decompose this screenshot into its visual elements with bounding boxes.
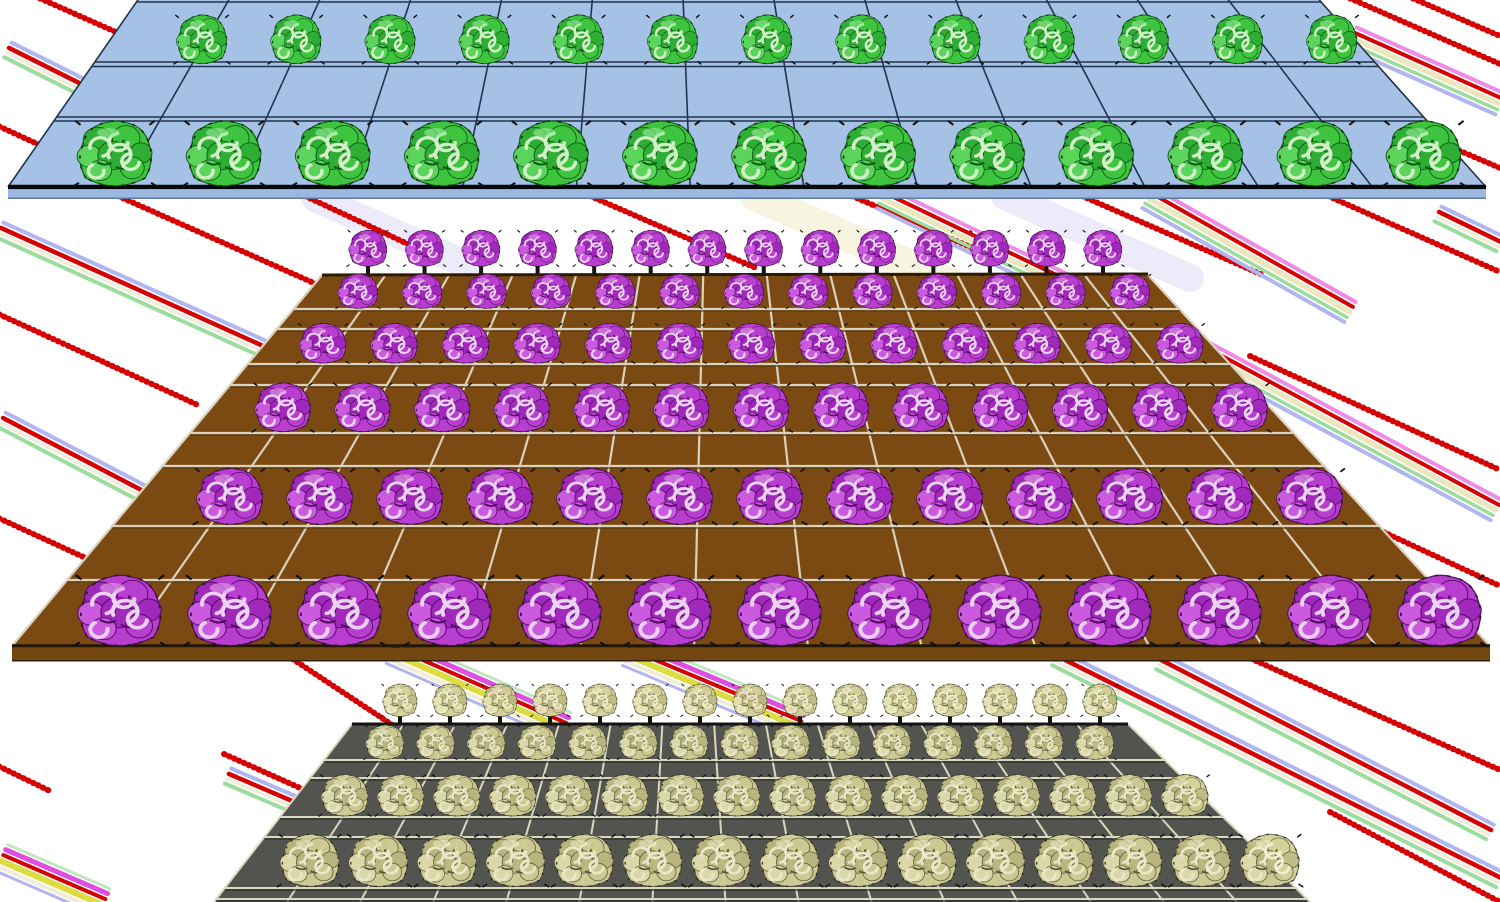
scene [0, 0, 1500, 902]
field-back-field [8, 0, 1486, 198]
field-far-edge [322, 274, 1148, 275]
field-side-face [12, 648, 1490, 661]
plant-row-olive [363, 725, 1116, 760]
plant-row-olive [277, 834, 1304, 887]
field-side-face [8, 189, 1486, 198]
scene-canvas [0, 0, 1500, 902]
